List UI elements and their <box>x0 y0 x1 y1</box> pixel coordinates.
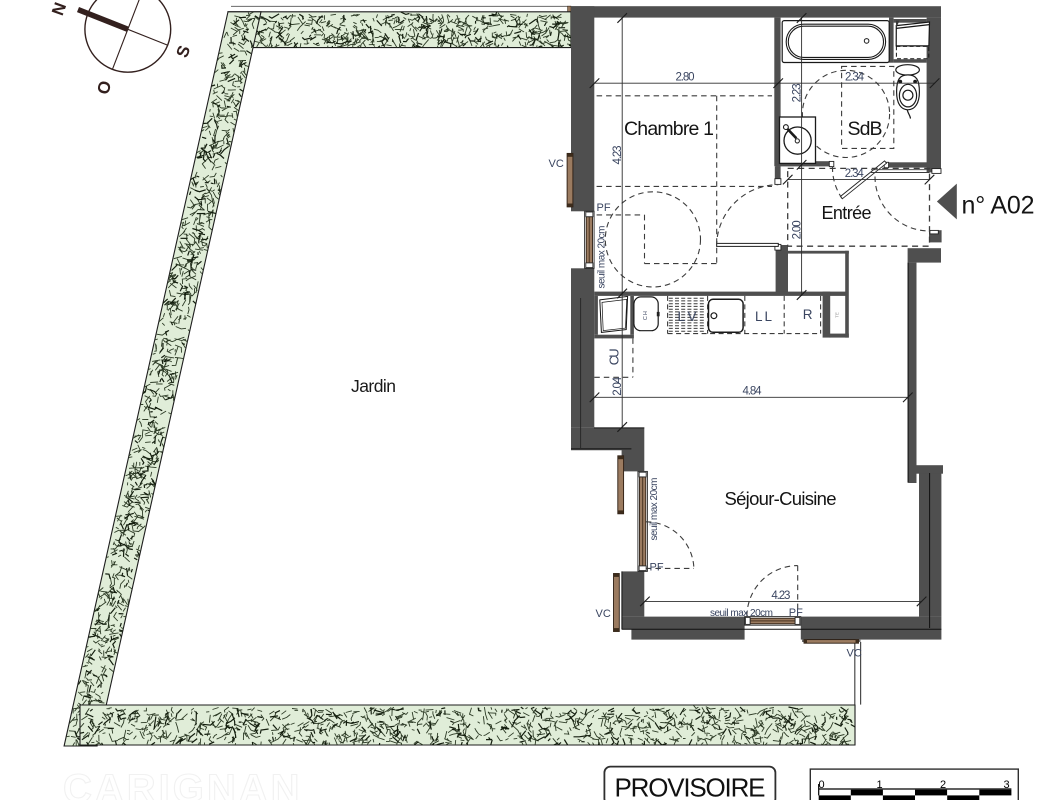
svg-text:seuil max 20cm: seuil max 20cm <box>710 608 773 619</box>
svg-text:n° A02: n° A02 <box>962 192 1035 220</box>
svg-text:2.80: 2.80 <box>676 72 695 84</box>
svg-text:2.34: 2.34 <box>845 72 865 84</box>
svg-text:CU: CU <box>607 348 622 365</box>
svg-text:3: 3 <box>1004 779 1010 791</box>
svg-text:O: O <box>93 79 115 97</box>
svg-text:PF: PF <box>597 202 611 214</box>
svg-text:1: 1 <box>877 779 883 791</box>
svg-text:VC: VC <box>596 608 611 620</box>
svg-text:PF: PF <box>789 607 803 619</box>
svg-text:2.34: 2.34 <box>845 168 865 180</box>
svg-text:2.00: 2.00 <box>791 220 803 239</box>
svg-text:LL: LL <box>755 309 772 324</box>
svg-text:Jardin: Jardin <box>351 376 396 396</box>
svg-text:CARIGNAN: CARIGNAN <box>63 767 303 800</box>
svg-text:2: 2 <box>940 779 946 791</box>
svg-text:VC: VC <box>549 158 564 170</box>
svg-text:2.04: 2.04 <box>612 376 624 396</box>
svg-text:4.84: 4.84 <box>743 386 763 398</box>
svg-text:4.23: 4.23 <box>612 146 624 165</box>
svg-text:0: 0 <box>819 779 825 791</box>
svg-text:Séjour-Cuisine: Séjour-Cuisine <box>725 488 837 509</box>
svg-text:TE: TE <box>835 312 840 318</box>
svg-text:seuil max 20cm: seuil max 20cm <box>649 478 660 541</box>
svg-text:S: S <box>172 43 194 60</box>
svg-text:Entrée: Entrée <box>822 203 872 223</box>
svg-text:4.23: 4.23 <box>771 590 790 602</box>
svg-text:VC: VC <box>847 648 862 660</box>
svg-text:SdB: SdB <box>848 118 883 140</box>
svg-text:seuil max 20cm: seuil max 20cm <box>597 226 608 289</box>
svg-text:LV: LV <box>678 309 697 324</box>
svg-text:Chambre 1: Chambre 1 <box>624 118 714 140</box>
svg-text:PF: PF <box>650 562 664 574</box>
svg-text:R: R <box>803 307 813 322</box>
svg-text:2.23: 2.23 <box>792 83 804 102</box>
svg-text:N: N <box>48 0 70 18</box>
svg-text:CH: CH <box>643 311 649 320</box>
svg-text:PROVISOIRE: PROVISOIRE <box>615 773 766 800</box>
